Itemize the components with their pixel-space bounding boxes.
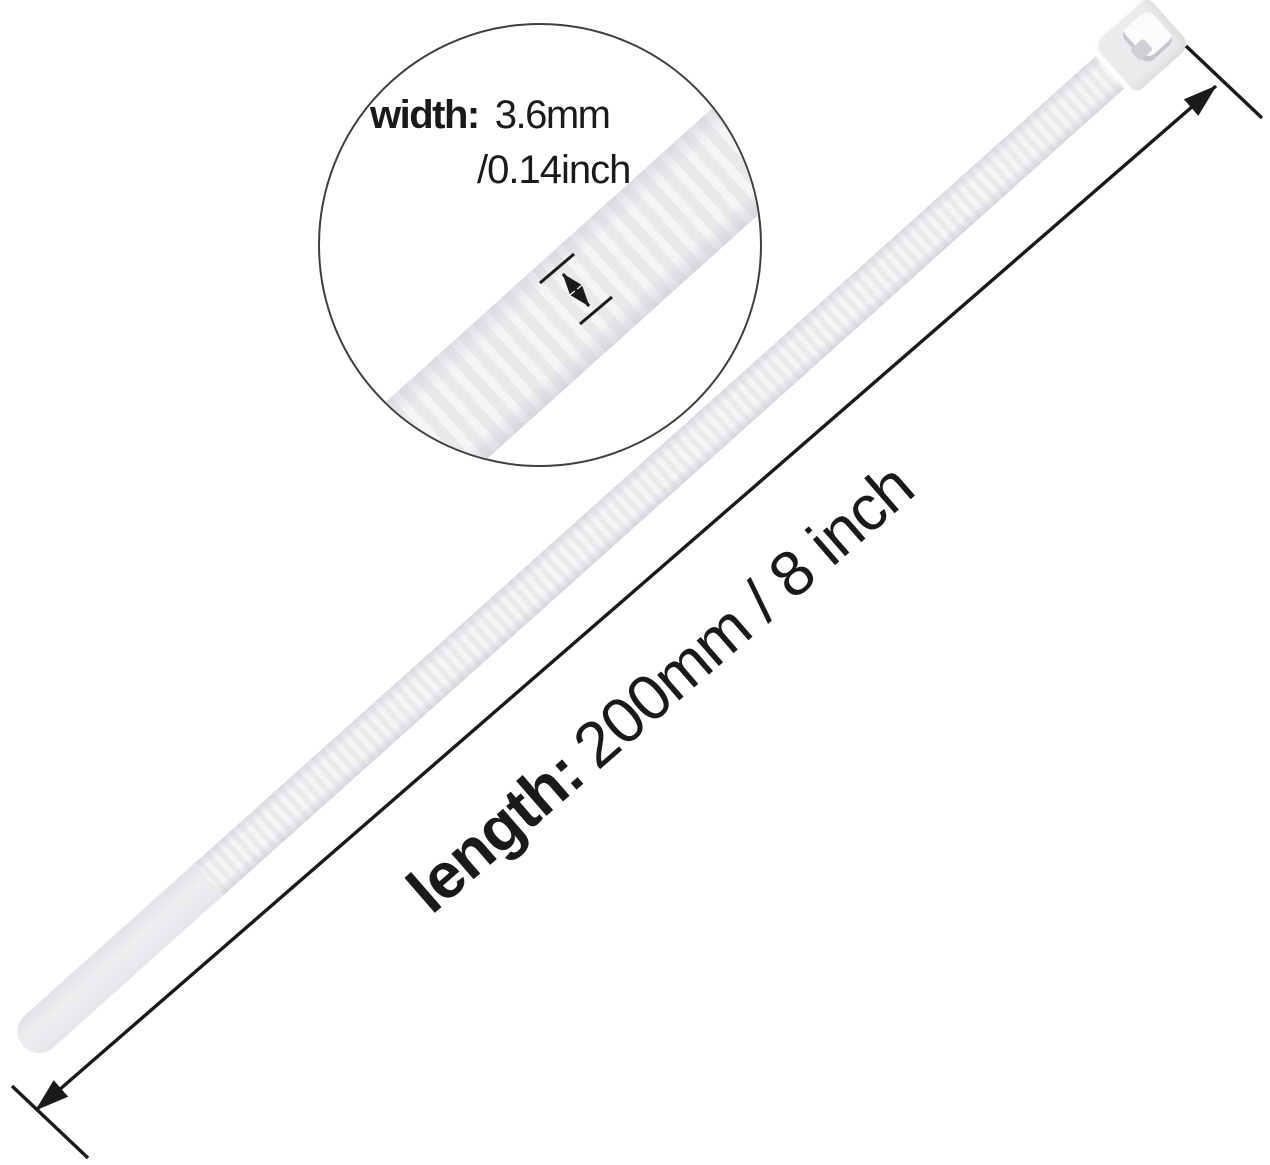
length-extension-tick-top (1186, 46, 1262, 118)
width-value-metric: 3.6mm (495, 93, 610, 137)
width-label: width: (370, 93, 479, 137)
width-callout: width:3.6mm (370, 94, 609, 136)
length-extension-tick-bottom (12, 1086, 88, 1158)
length-label: length: (393, 737, 596, 927)
cable-tie-tip (9, 863, 224, 1062)
length-callout: length:200mm / 8 inch (393, 449, 927, 927)
product-diagram: width:3.6mm /0.14inch length:200mm / 8 i… (0, 0, 1270, 1165)
width-value-imperial: /0.14inch (477, 149, 630, 191)
head-slot (1119, 9, 1175, 66)
magnifier-circle (318, 23, 762, 467)
